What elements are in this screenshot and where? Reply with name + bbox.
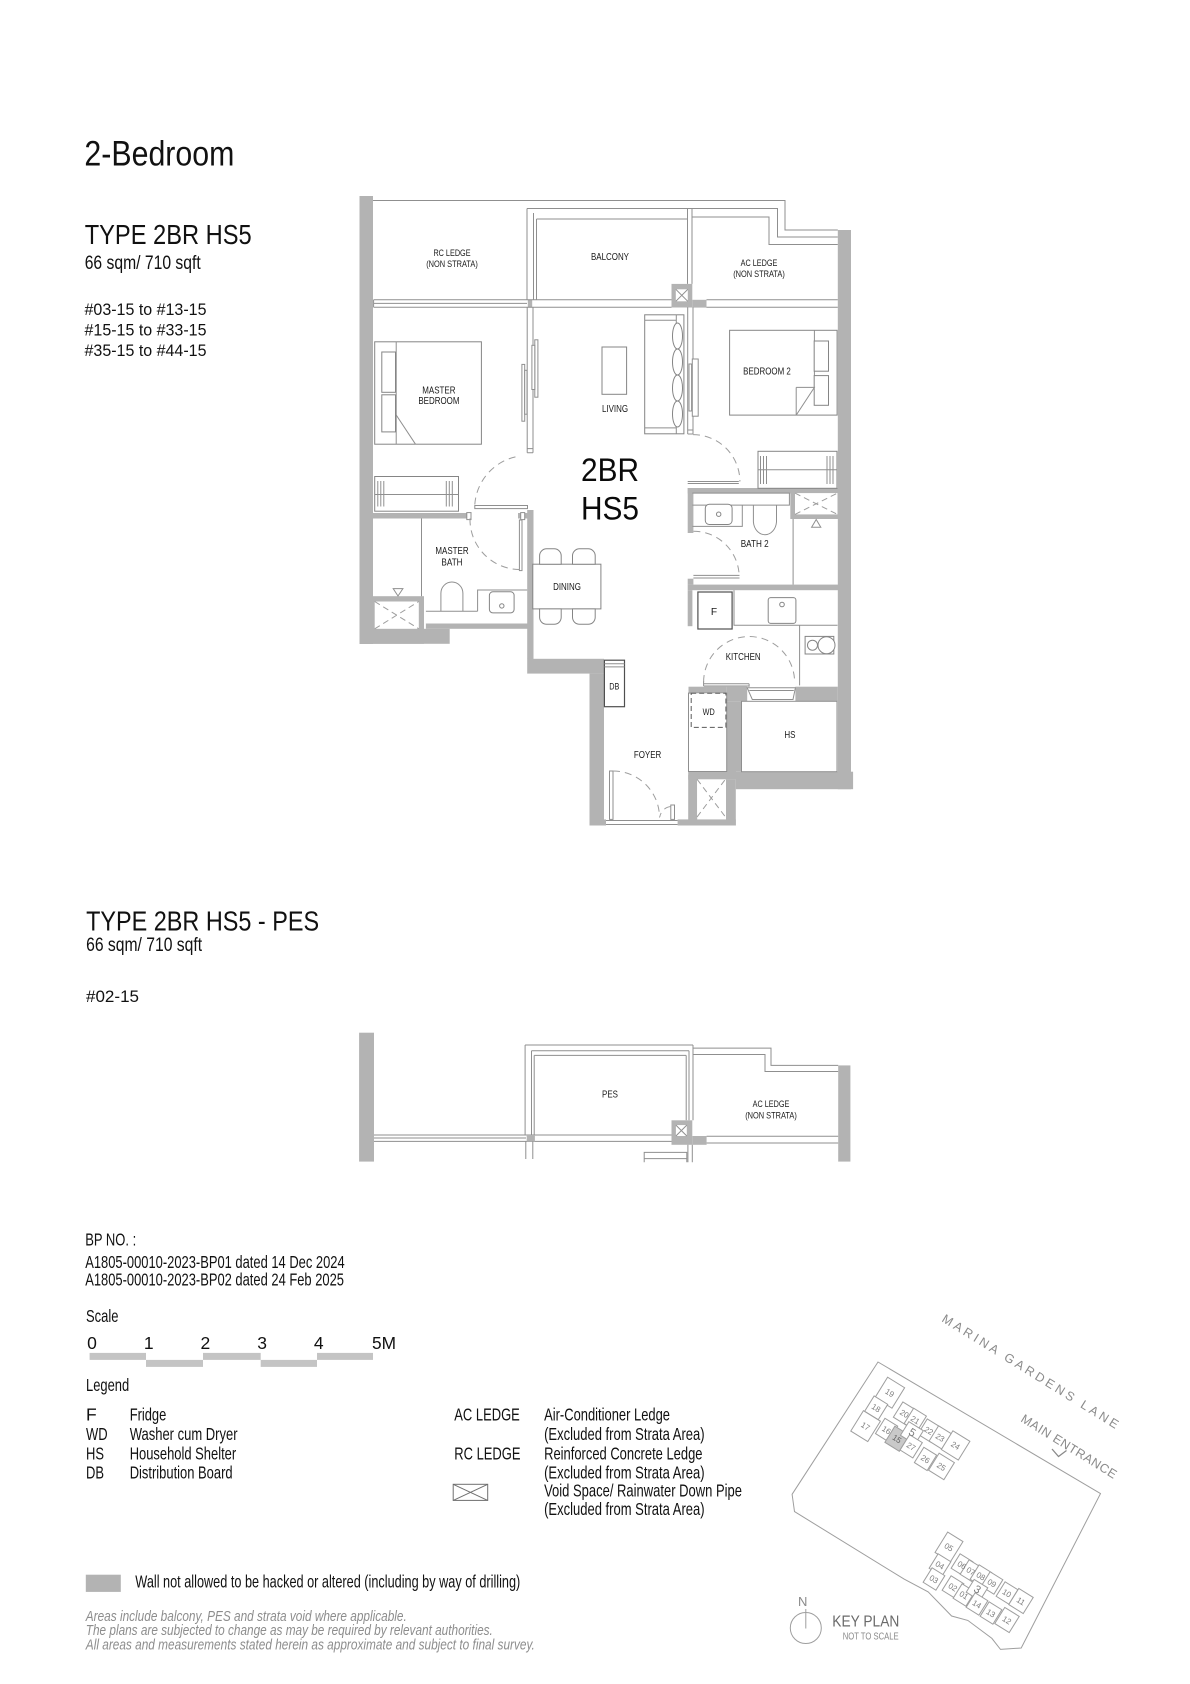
svg-text:AC LEDGE: AC LEDGE	[741, 258, 778, 268]
svg-text:BATH: BATH	[441, 558, 462, 569]
svg-text:(Excluded from Strata Area): (Excluded from Strata Area)	[544, 1463, 705, 1483]
svg-text:Reinforced Concrete Ledge: Reinforced Concrete Ledge	[544, 1443, 702, 1463]
svg-text:Scale: Scale	[86, 1306, 118, 1326]
svg-text:BP NO. :: BP NO. :	[85, 1229, 136, 1249]
svg-text:Wall not allowed to be hacked: Wall not allowed to be hacked or altered…	[135, 1572, 520, 1592]
svg-text:DB: DB	[86, 1463, 104, 1483]
svg-text:#15-15 to #33-15: #15-15 to #33-15	[85, 322, 207, 340]
svg-text:FOYER: FOYER	[634, 750, 661, 761]
svg-text:5M: 5M	[372, 1333, 396, 1353]
svg-text:KEY PLAN: KEY PLAN	[832, 1614, 899, 1631]
svg-text:2: 2	[201, 1333, 211, 1353]
svg-text:PES: PES	[602, 1090, 618, 1101]
svg-text:BATH 2: BATH 2	[741, 539, 769, 550]
svg-text:N: N	[798, 1594, 807, 1609]
svg-text:66 sqm/ 710 sqft: 66 sqm/ 710 sqft	[86, 935, 203, 956]
svg-text:WD: WD	[703, 707, 715, 717]
svg-text:(Excluded from Strata Area): (Excluded from Strata Area)	[544, 1499, 705, 1519]
svg-text:Legend: Legend	[86, 1375, 129, 1395]
svg-text:#35-15 to #44-15: #35-15 to #44-15	[85, 342, 207, 360]
svg-text:DINING: DINING	[553, 582, 581, 593]
svg-text:RC LEDGE: RC LEDGE	[433, 248, 470, 258]
svg-text:(NON STRATA): (NON STRATA)	[745, 1111, 797, 1121]
svg-text:66 sqm/ 710 sqft: 66 sqm/ 710 sqft	[85, 253, 202, 274]
svg-text:2BR: 2BR	[581, 452, 639, 488]
svg-text:HS5: HS5	[581, 491, 639, 527]
svg-text:Void Space/ Rainwater Down Pip: Void Space/ Rainwater Down Pipe	[544, 1481, 742, 1501]
svg-text:NOT TO SCALE: NOT TO SCALE	[843, 1631, 899, 1643]
svg-text:RC LEDGE: RC LEDGE	[454, 1443, 520, 1463]
svg-text:LIVING: LIVING	[602, 404, 628, 415]
svg-text:2-Bedroom: 2-Bedroom	[84, 135, 234, 174]
svg-text:Distribution Board: Distribution Board	[130, 1463, 233, 1483]
svg-text:F: F	[711, 607, 717, 618]
svg-text:#02-15: #02-15	[86, 988, 139, 1006]
svg-text:All areas and measurements sta: All areas and measurements stated herein…	[85, 1637, 535, 1654]
svg-text:BEDROOM: BEDROOM	[418, 396, 459, 407]
svg-text:BEDROOM 2: BEDROOM 2	[743, 367, 791, 378]
svg-text:AC LEDGE: AC LEDGE	[753, 1099, 790, 1109]
svg-text:3: 3	[257, 1333, 267, 1353]
svg-text:1: 1	[144, 1333, 154, 1353]
svg-text:DB: DB	[609, 682, 619, 692]
svg-text:0: 0	[87, 1333, 97, 1353]
svg-text:HS: HS	[784, 730, 795, 741]
svg-text:MASTER: MASTER	[422, 385, 455, 396]
svg-text:HS: HS	[86, 1443, 104, 1463]
svg-text:KITCHEN: KITCHEN	[726, 652, 761, 663]
svg-text:(NON STRATA): (NON STRATA)	[426, 259, 478, 269]
svg-text:TYPE 2BR HS5 - PES: TYPE 2BR HS5 - PES	[86, 905, 319, 936]
svg-text:MASTER: MASTER	[435, 546, 468, 557]
svg-text:WD: WD	[86, 1424, 108, 1444]
svg-text:Household Shelter: Household Shelter	[130, 1443, 237, 1463]
svg-text:Air-Conditioner Ledge: Air-Conditioner Ledge	[544, 1405, 670, 1425]
svg-text:(Excluded from Strata Area): (Excluded from Strata Area)	[544, 1424, 705, 1444]
svg-text:(NON STRATA): (NON STRATA)	[733, 269, 785, 279]
svg-text:Fridge: Fridge	[130, 1405, 167, 1425]
svg-text:#03-15 to #13-15: #03-15 to #13-15	[85, 301, 207, 319]
svg-text:AC LEDGE: AC LEDGE	[454, 1405, 520, 1425]
svg-text:F: F	[86, 1405, 97, 1425]
svg-text:BALCONY: BALCONY	[591, 252, 629, 263]
svg-text:4: 4	[314, 1333, 324, 1353]
svg-text:TYPE 2BR HS5: TYPE 2BR HS5	[85, 219, 252, 250]
svg-text:Washer cum Dryer: Washer cum Dryer	[130, 1424, 238, 1444]
svg-text:A1805-00010-2023-BP02 dated 24: A1805-00010-2023-BP02 dated 24 Feb 2025	[85, 1270, 344, 1290]
